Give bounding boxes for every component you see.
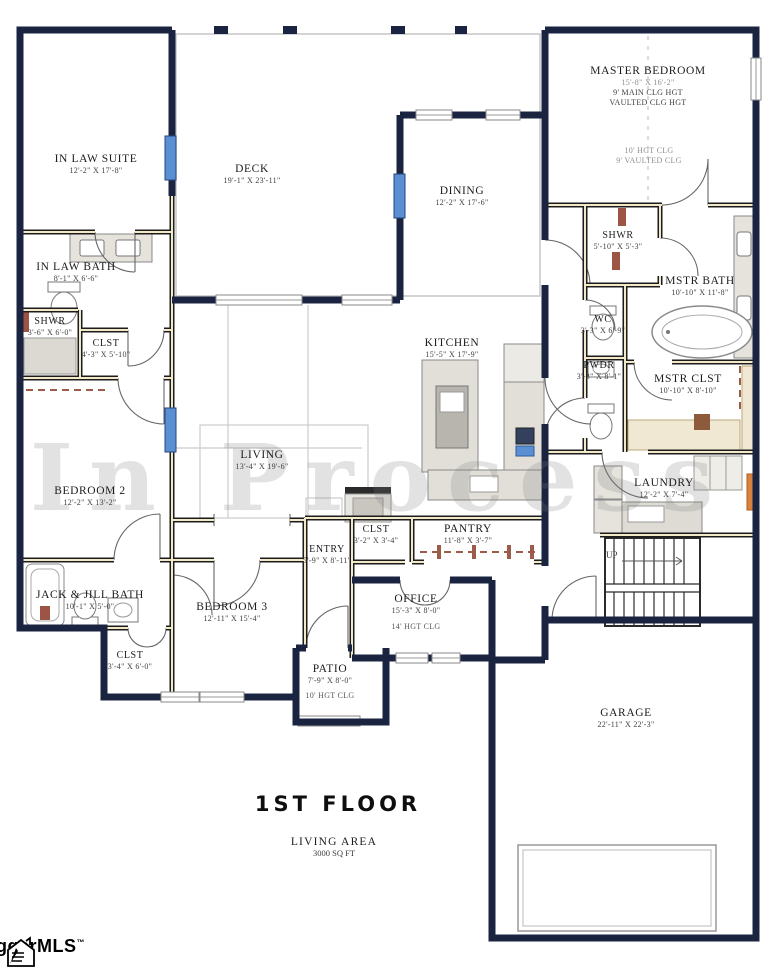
room-label-garage: GARAGE 22'-11" X 22'-3": [597, 706, 654, 730]
living-area-block: LIVING AREA 3000 SQ FT: [291, 836, 377, 858]
windows-blue: [165, 136, 405, 452]
room-label-master-bedroom: MASTER BEDROOM 15'-8" X 16'-2" 9' MAIN C…: [590, 64, 705, 107]
room-label-patio: PATIO 7'-9" X 8'-0" 10' HGT CLG: [305, 662, 354, 701]
living-area-value: 3000 SQ FT: [291, 848, 377, 858]
room-label-in-law-suite: IN LAW SUITE 12'-2" X 17'-8": [55, 152, 138, 176]
room-label-entry-closet: CLST 3'-2" X 3'-4": [354, 524, 398, 546]
room-label-bedroom-3-closet: CLST 3'-4" X 6'-0": [108, 650, 152, 672]
room-label-bedroom-3: BEDROOM 3 12'-11" X 15'-4": [196, 600, 268, 624]
room-label-in-law-bath: IN LAW BATH 8'-1" X 6'-6": [36, 260, 116, 284]
floor-title: 1ST FLOOR: [255, 792, 421, 816]
room-label-jack-and-jill-bath: JACK & JILL BATH 10'-1" X 5'-0": [36, 588, 144, 612]
room-label-wc: WC 3'-3" X 6'-9": [581, 314, 625, 336]
living-area-label: LIVING AREA: [291, 836, 377, 848]
deck-posts: [214, 26, 467, 34]
room-label-kitchen: KITCHEN 15'-5" X 17'-9": [425, 336, 480, 360]
room-label-in-law-closet: CLST 4'-3" X 5'-10": [82, 338, 131, 360]
floorplan-page: In Process IN LAW SUITE 12'-2" X 17'-8" …: [0, 0, 780, 980]
room-label-master-closet: MSTR CLST 10'-10" X 8'-10": [654, 372, 722, 396]
stairs-up-label: UP: [606, 550, 618, 560]
living-furniture: [174, 305, 368, 518]
room-label-powder: PWDR 3'-3" X 8'-1": [577, 360, 621, 382]
room-label-laundry: LAUNDRY 12'-2" X 7'-4": [634, 476, 694, 500]
master-zone-notes: 10' HGT CLG 9' VAULTED CLG: [616, 146, 682, 166]
mls-logo: ggarMLS™: [2, 936, 85, 957]
room-label-bedroom-2: BEDROOM 2 12'-2" X 13'-2": [54, 484, 126, 508]
room-label-pantry: PANTRY 11'-8" X 3'-7": [444, 522, 492, 546]
room-label-dining: DINING 12'-2" X 17'-6": [435, 184, 488, 208]
house-icon: [2, 936, 42, 970]
room-label-master-bath: MSTR BATH 10'-10" X 11'-8": [665, 274, 735, 298]
room-label-living: LIVING 13'-4" X 19'-6": [235, 448, 288, 472]
staircase: [605, 538, 700, 626]
room-label-office: OFFICE 15'-3" X 8'-0" 14' HGT CLG: [391, 592, 440, 632]
room-label-master-shower: SHWR 5'-10" X 5'-3": [594, 230, 643, 252]
room-label-deck: DECK 19'-1" X 23'-11": [223, 162, 280, 186]
room-label-in-law-shower: SHWR 3'-6" X 6'-0": [28, 316, 72, 338]
room-label-entry: ENTRY 5'-9" X 8'-11": [303, 544, 351, 566]
